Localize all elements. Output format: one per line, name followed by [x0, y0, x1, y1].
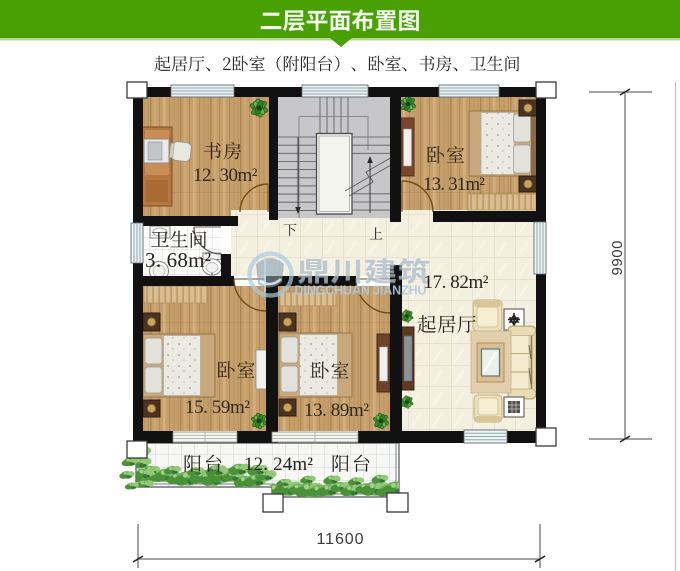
- svg-text:12. 30m²: 12. 30m²: [193, 165, 258, 186]
- svg-text:3. 68m²: 3. 68m²: [145, 248, 211, 272]
- svg-text:15. 59m²: 15. 59m²: [185, 397, 250, 418]
- svg-text:12. 24m²: 12. 24m²: [244, 454, 313, 475]
- svg-text:13. 89m²: 13. 89m²: [304, 400, 369, 421]
- svg-text:11600: 11600: [317, 531, 364, 548]
- svg-text:DINGCHUAN JIANZHU: DINGCHUAN JIANZHU: [295, 284, 428, 298]
- svg-text:17. 82m²: 17. 82m²: [424, 272, 489, 293]
- svg-text:13. 31m²: 13. 31m²: [423, 174, 485, 195]
- svg-text:9900: 9900: [609, 241, 626, 276]
